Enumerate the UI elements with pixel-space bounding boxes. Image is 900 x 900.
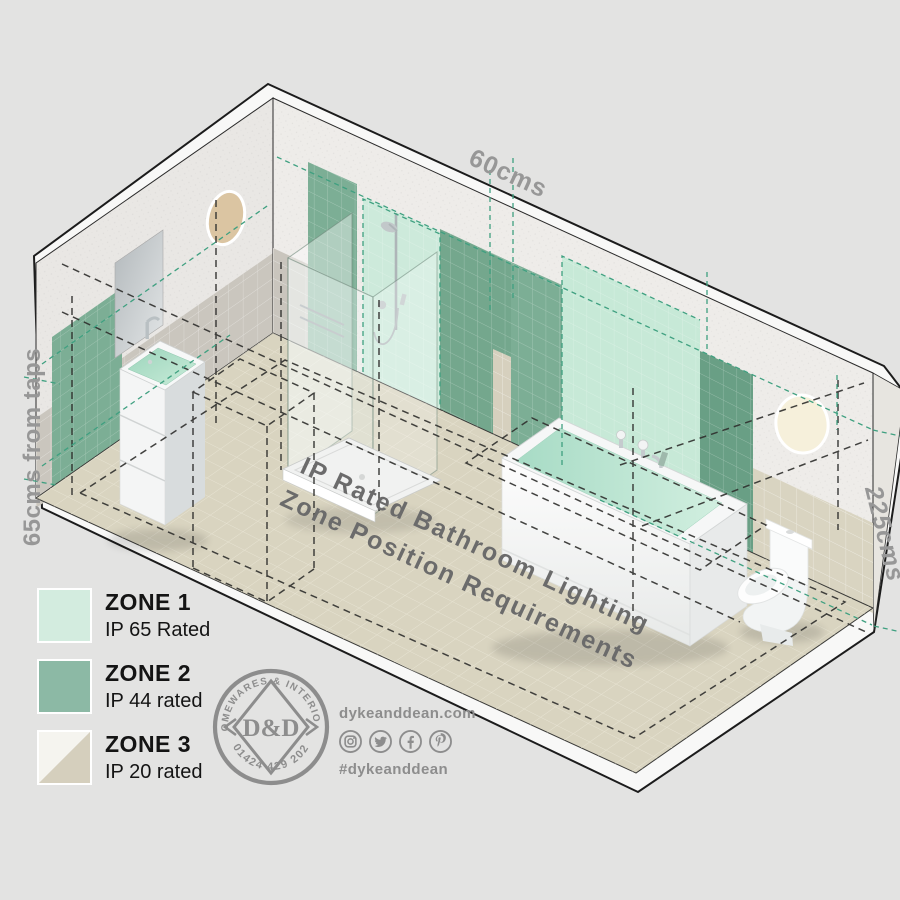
brand-website: dykeanddean.com xyxy=(339,705,476,722)
zone2-rating: IP 44 rated xyxy=(105,690,202,713)
brand-logo: HOMEWARES & INTERIORS 01424 429 202 D&D xyxy=(205,661,337,793)
instagram-icon xyxy=(339,730,362,753)
zone3-rating: IP 20 rated xyxy=(105,761,202,784)
zone3-swatch xyxy=(37,730,92,785)
zone1-swatch xyxy=(37,588,92,643)
logo-arc-bottom-text: 01424 429 202 xyxy=(230,742,312,773)
zone2-swatch xyxy=(37,659,92,714)
facebook-icon xyxy=(399,730,422,753)
infographic-canvas: 60cms 65cms from taps 225cms IP Rated Ba… xyxy=(0,0,900,900)
dimension-label-65cms: 65cms from taps xyxy=(19,348,47,546)
twitter-icon xyxy=(369,730,392,753)
legend-row-zone1: ZONE 1 IP 65 Rated xyxy=(37,588,210,643)
zone1-rating: IP 65 Rated xyxy=(105,619,210,642)
legend-row-zone2: ZONE 2 IP 44 rated xyxy=(37,659,210,714)
social-icons xyxy=(339,730,476,753)
pinterest-icon xyxy=(429,730,452,753)
zone3-name: ZONE 3 xyxy=(105,731,202,758)
zone2-name: ZONE 2 xyxy=(105,660,202,687)
brand-hashtag: #dykeanddean xyxy=(339,761,476,778)
svg-text:01424 429 202: 01424 429 202 xyxy=(230,742,312,773)
zone-legend: ZONE 1 IP 65 Rated ZONE 2 IP 44 rated ZO… xyxy=(37,588,210,785)
legend-row-zone3: ZONE 3 IP 20 rated xyxy=(37,730,210,785)
zone1-name: ZONE 1 xyxy=(105,589,210,616)
brand-contact-block: dykeanddean.com #dykeanddean xyxy=(339,705,476,778)
basin-tap xyxy=(146,322,149,339)
logo-monogram: D&D xyxy=(243,715,300,742)
